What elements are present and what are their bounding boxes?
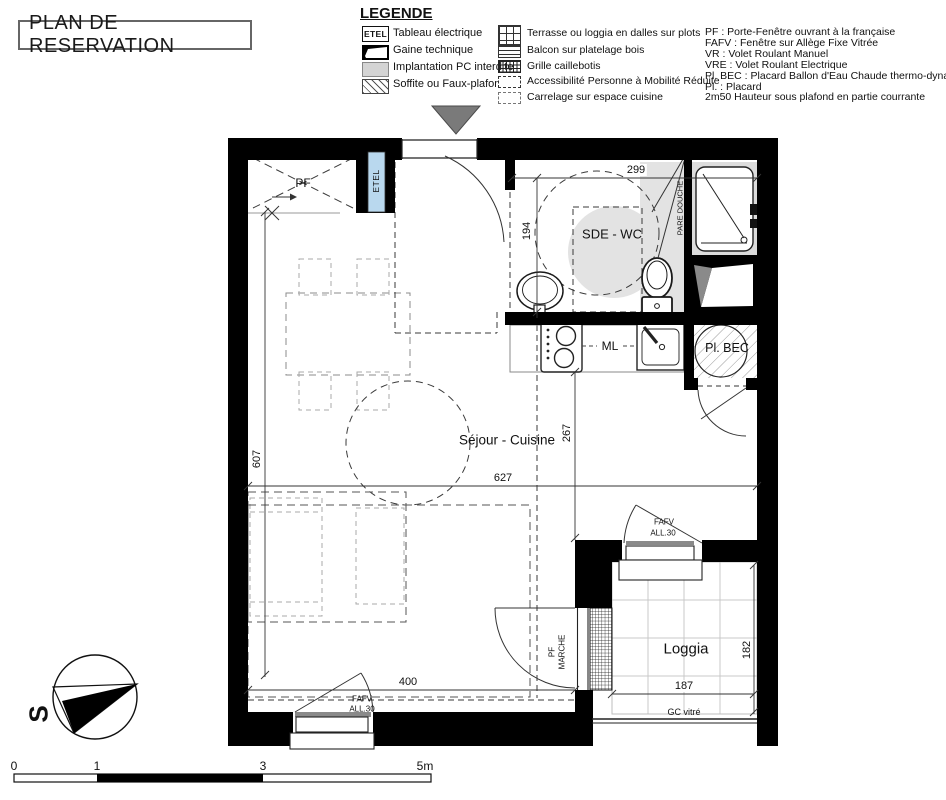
legend-heading: LEGENDE (360, 5, 433, 22)
scale-bar (14, 774, 431, 782)
floor-plan-drawing (0, 0, 946, 800)
entrance-arrow-icon (432, 106, 480, 134)
pf-marche-line2: MARCHE (557, 635, 567, 670)
dim-267: 267 (561, 424, 573, 442)
room-label-loggia: Loggia (663, 641, 708, 658)
scale-tick-5m: 5m (417, 759, 434, 773)
dim-627: 627 (492, 472, 514, 484)
all30-loggia-label: ALL.30 (650, 529, 675, 538)
legend-label: Implantation PC interdite (393, 61, 513, 73)
legend-label: Carrelage sur espace cuisine (527, 91, 663, 103)
abbr-line: 2m50 Hauteur sous plafond en partie cour… (705, 92, 946, 103)
compass-rose (53, 655, 137, 739)
pare-douche-label: PARE DOUCHE (676, 181, 685, 235)
fafv-south-label: FAFV (352, 695, 372, 704)
dim-182: 182 (741, 641, 753, 659)
gaine-technique (694, 264, 753, 307)
soffite-icon (362, 79, 389, 94)
legend-label: Gaine technique (393, 44, 473, 56)
cooktop (541, 321, 582, 372)
entrance (402, 106, 504, 242)
dim-187: 187 (673, 680, 695, 692)
abbreviations-block: PF : Porte-Fenêtre ouvrant à la français… (705, 27, 946, 103)
dim-194: 194 (521, 222, 533, 240)
room-label-sde-wc: SDE - WC (582, 227, 642, 242)
scale-tick-1: 1 (94, 759, 101, 773)
abbr-line: VRE : Volet Roulant Electrique (705, 60, 946, 71)
legend-label: Grille caillebotis (527, 60, 601, 72)
scale-tick-3: 3 (260, 759, 267, 773)
gc-vitre-rail (592, 719, 757, 723)
legend-label: Accessibilité Personne à Mobilité Réduit… (527, 75, 720, 87)
etel-legend-icon: ETEL (362, 26, 389, 42)
pf-marche-label: PF MARCHE (547, 635, 566, 670)
pf-zone-label: PF (295, 176, 310, 190)
toilet (642, 258, 672, 316)
carrelage-dashed-icon (498, 92, 521, 104)
compass-south-label: S (24, 705, 55, 722)
dalles-grid-icon (498, 25, 521, 45)
gaine-technique-icon (362, 45, 389, 60)
floor-plan-page: PLAN DE RESERVATION LEGENDE ETEL Tableau… (0, 0, 946, 800)
ml-label: ML (600, 339, 621, 353)
dim-607: 607 (251, 450, 263, 468)
legend-label: Soffite ou Faux-plafond (393, 78, 507, 90)
pc-interdite-icon (362, 62, 389, 77)
caillebotis-grate (590, 608, 612, 690)
abbr-line: Pl. BEC : Placard Ballon d'Eau Chaude th… (705, 71, 946, 82)
legend-label: Balcon sur platelage bois (527, 44, 644, 56)
platelage-icon (498, 45, 521, 58)
scale-tick-0: 0 (11, 759, 18, 773)
dim-400: 400 (397, 676, 419, 688)
room-label-sejour-cuisine: Séjour - Cuisine (459, 433, 555, 448)
legend-label: Terrasse ou loggia en dalles sur plots (527, 27, 700, 39)
etel-label: ETEL (371, 169, 381, 192)
window-loggia (619, 505, 702, 580)
furniture (250, 259, 410, 616)
washbasin (517, 272, 563, 318)
loggia-door (495, 608, 588, 690)
all30-south-label: ALL.30 (349, 705, 374, 714)
gc-vitre-label: GC vitré (667, 707, 700, 717)
kitchen-sink (637, 322, 684, 370)
etel-icon-text: ETEL (364, 29, 387, 39)
kitchen-counter (510, 321, 684, 372)
entry-marks (248, 194, 340, 221)
pl-bec-door (698, 386, 746, 436)
pf-marche-line1: PF (547, 635, 557, 670)
dim-299: 299 (625, 164, 647, 176)
pmr-dashed-icon (498, 76, 521, 88)
room-label-pl-bec: Pl. BEC (705, 341, 749, 355)
legend-label: Tableau électrique (393, 27, 482, 39)
caillebotis-icon (498, 60, 521, 73)
fafv-loggia-label: FAFV (654, 518, 674, 527)
page-title: PLAN DE RESERVATION (18, 20, 252, 50)
